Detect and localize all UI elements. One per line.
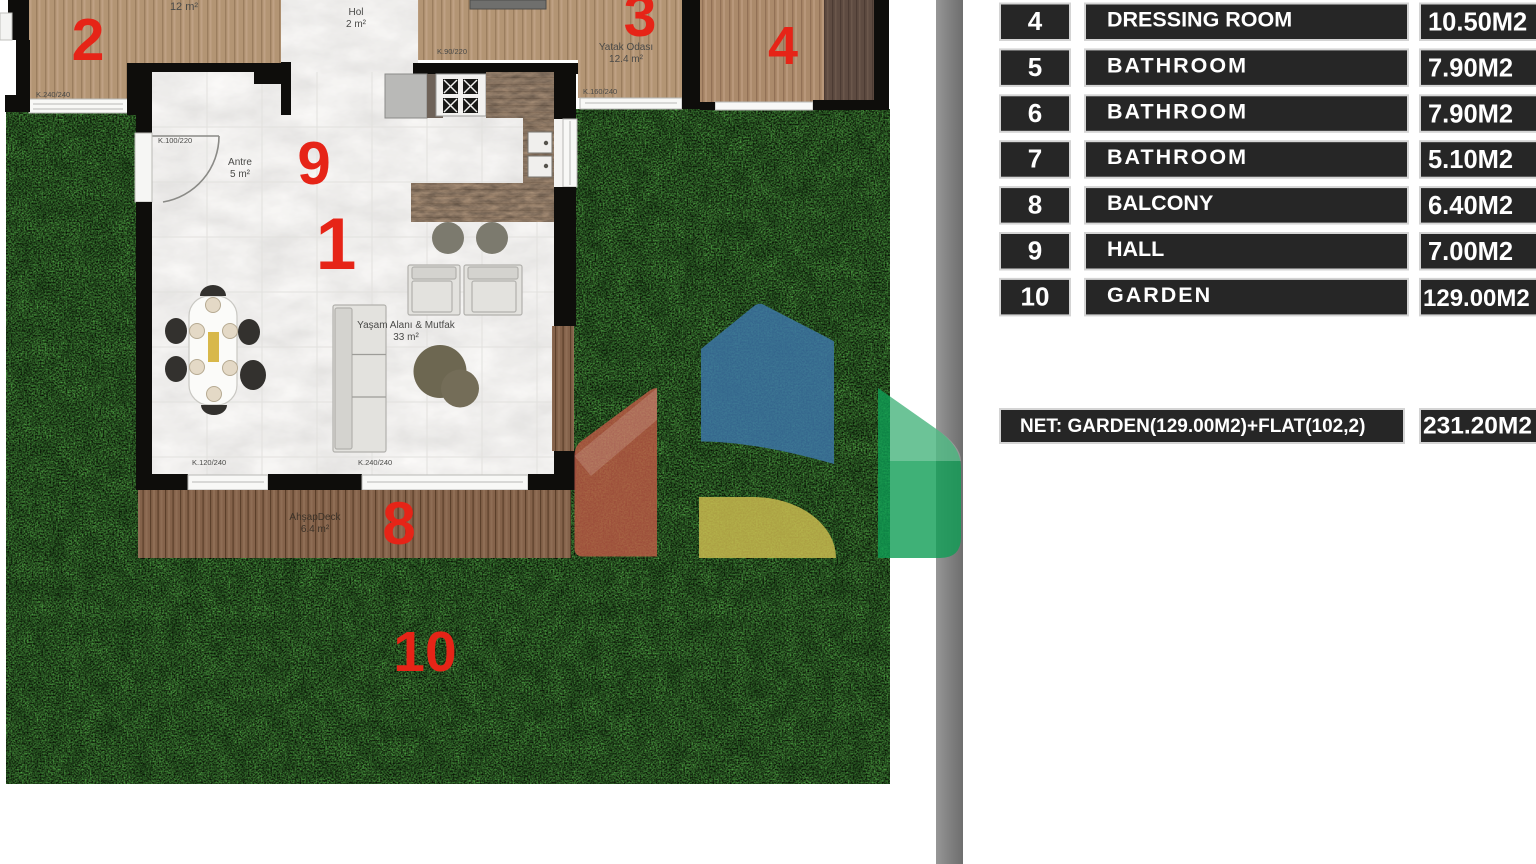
svg-text:9: 9 [297,130,330,197]
svg-text:K.90/220: K.90/220 [437,47,467,56]
svg-text:12.4 m²: 12.4 m² [609,54,644,65]
svg-text:Yaşam Alanı & Mutfak: Yaşam Alanı & Mutfak [357,320,456,331]
svg-text:BATHROOM: BATHROOM [1107,145,1248,169]
svg-text:Hol: Hol [348,7,363,18]
svg-text:Yatak Odası: Yatak Odası [599,42,653,53]
svg-text:8: 8 [382,490,415,557]
svg-text:5.10M2: 5.10M2 [1428,146,1513,174]
svg-text:8: 8 [1028,190,1042,220]
svg-text:10: 10 [1021,281,1050,311]
svg-text:5 m²: 5 m² [230,169,251,180]
svg-text:7.00M2: 7.00M2 [1428,238,1513,266]
svg-text:5: 5 [1028,52,1042,82]
svg-text:10: 10 [393,620,456,684]
svg-text:6: 6 [1028,98,1042,128]
svg-text:4: 4 [1028,6,1043,36]
svg-text:7.90M2: 7.90M2 [1428,100,1513,128]
svg-text:BATHROOM: BATHROOM [1107,99,1248,123]
svg-text:7.90M2: 7.90M2 [1428,54,1513,82]
svg-text:10.50M2: 10.50M2 [1428,9,1527,37]
svg-text:Antre: Antre [228,157,252,168]
svg-text:BALCONY: BALCONY [1107,191,1213,215]
svg-text:DRESSING ROOM: DRESSING ROOM [1107,8,1292,32]
svg-text:K.160/240: K.160/240 [583,87,617,96]
svg-text:33 m²: 33 m² [393,332,419,343]
svg-text:4: 4 [768,16,798,76]
svg-text:7: 7 [1028,144,1042,174]
svg-text:6.4 m²: 6.4 m² [301,524,330,535]
svg-text:K.120/240: K.120/240 [192,458,226,467]
svg-text:129.00M2: 129.00M2 [1423,285,1530,312]
svg-text:K.100/220: K.100/220 [158,136,192,145]
svg-text:12 m²: 12 m² [170,1,198,13]
svg-text:NET: GARDEN(129.00M2)+FLAT(102: NET: GARDEN(129.00M2)+FLAT(102,2) [1020,416,1365,437]
svg-text:231.20M2: 231.20M2 [1423,413,1532,440]
svg-text:GARDEN: GARDEN [1107,283,1212,307]
svg-text:BATHROOM: BATHROOM [1107,53,1248,77]
svg-text:K.240/240: K.240/240 [358,458,392,467]
svg-text:2 m²: 2 m² [346,19,367,30]
svg-text:HALL: HALL [1107,237,1164,261]
svg-text:1: 1 [316,204,357,285]
svg-text:6.40M2: 6.40M2 [1428,192,1513,220]
svg-text:9: 9 [1028,236,1042,266]
svg-text:AhşapDeck: AhşapDeck [289,512,341,523]
svg-text:K.240/240: K.240/240 [36,90,70,99]
svg-text:2: 2 [72,7,105,73]
